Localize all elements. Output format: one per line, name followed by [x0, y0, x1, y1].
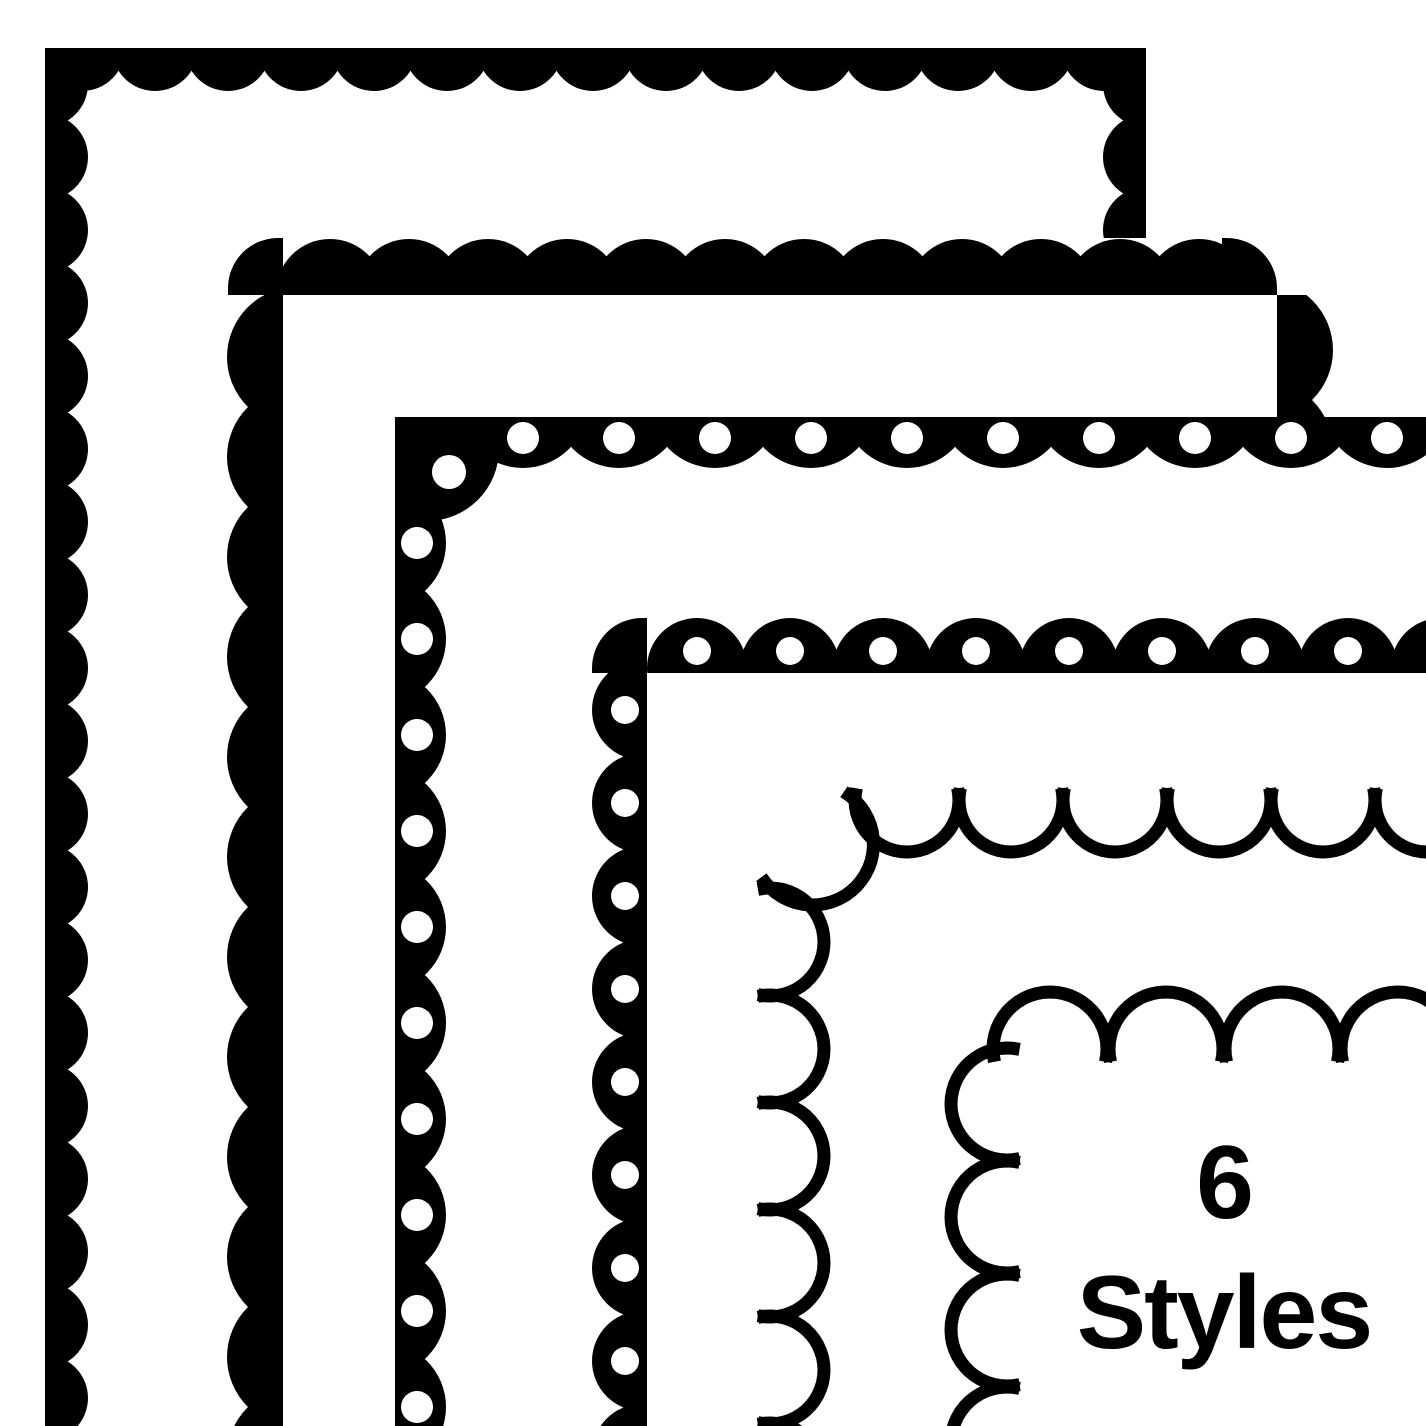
clipart-svg: 6 Styles: [0, 0, 1426, 1426]
clipart-stage: 6 Styles: [0, 0, 1426, 1426]
caption-count: 6: [1196, 1125, 1252, 1241]
caption-styles-label: Styles: [1077, 1255, 1371, 1371]
